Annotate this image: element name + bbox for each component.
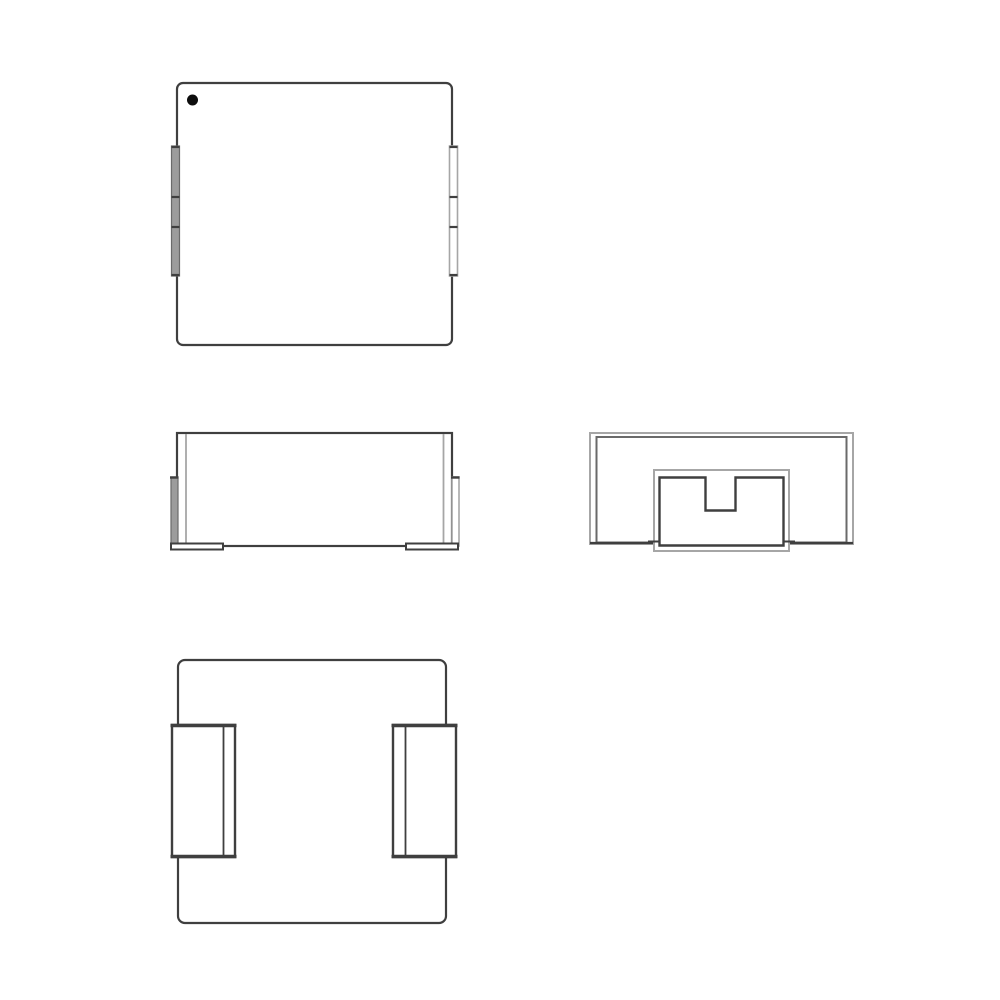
right-terminal-side-bar bbox=[452, 477, 459, 546]
bottom-view-left-pad bbox=[171, 725, 237, 857]
left-terminal-strip-body bbox=[172, 146, 180, 276]
left-terminal-foot bbox=[171, 544, 223, 550]
top-view-right-terminal-strip bbox=[450, 146, 458, 276]
left-pad-outline bbox=[172, 725, 235, 857]
left-terminal-side-bar bbox=[171, 477, 178, 546]
front-view-body-outline bbox=[177, 433, 452, 546]
top-view bbox=[172, 83, 458, 345]
right-terminal-strip-body bbox=[450, 146, 458, 276]
right-terminal-foot bbox=[406, 544, 458, 550]
right-pad-outline bbox=[393, 725, 456, 857]
package-outline-drawing bbox=[0, 0, 1000, 1000]
end-view-center-terminal bbox=[648, 470, 795, 551]
front-view bbox=[170, 433, 460, 550]
top-view-left-terminal-strip bbox=[172, 146, 180, 276]
top-view-body-outline bbox=[177, 83, 452, 345]
bottom-view-right-pad bbox=[392, 725, 458, 857]
bottom-view bbox=[171, 660, 458, 923]
end-view bbox=[590, 433, 853, 551]
pin-1-index-dot bbox=[187, 95, 198, 106]
technical-drawing-canvas bbox=[0, 0, 1000, 1000]
